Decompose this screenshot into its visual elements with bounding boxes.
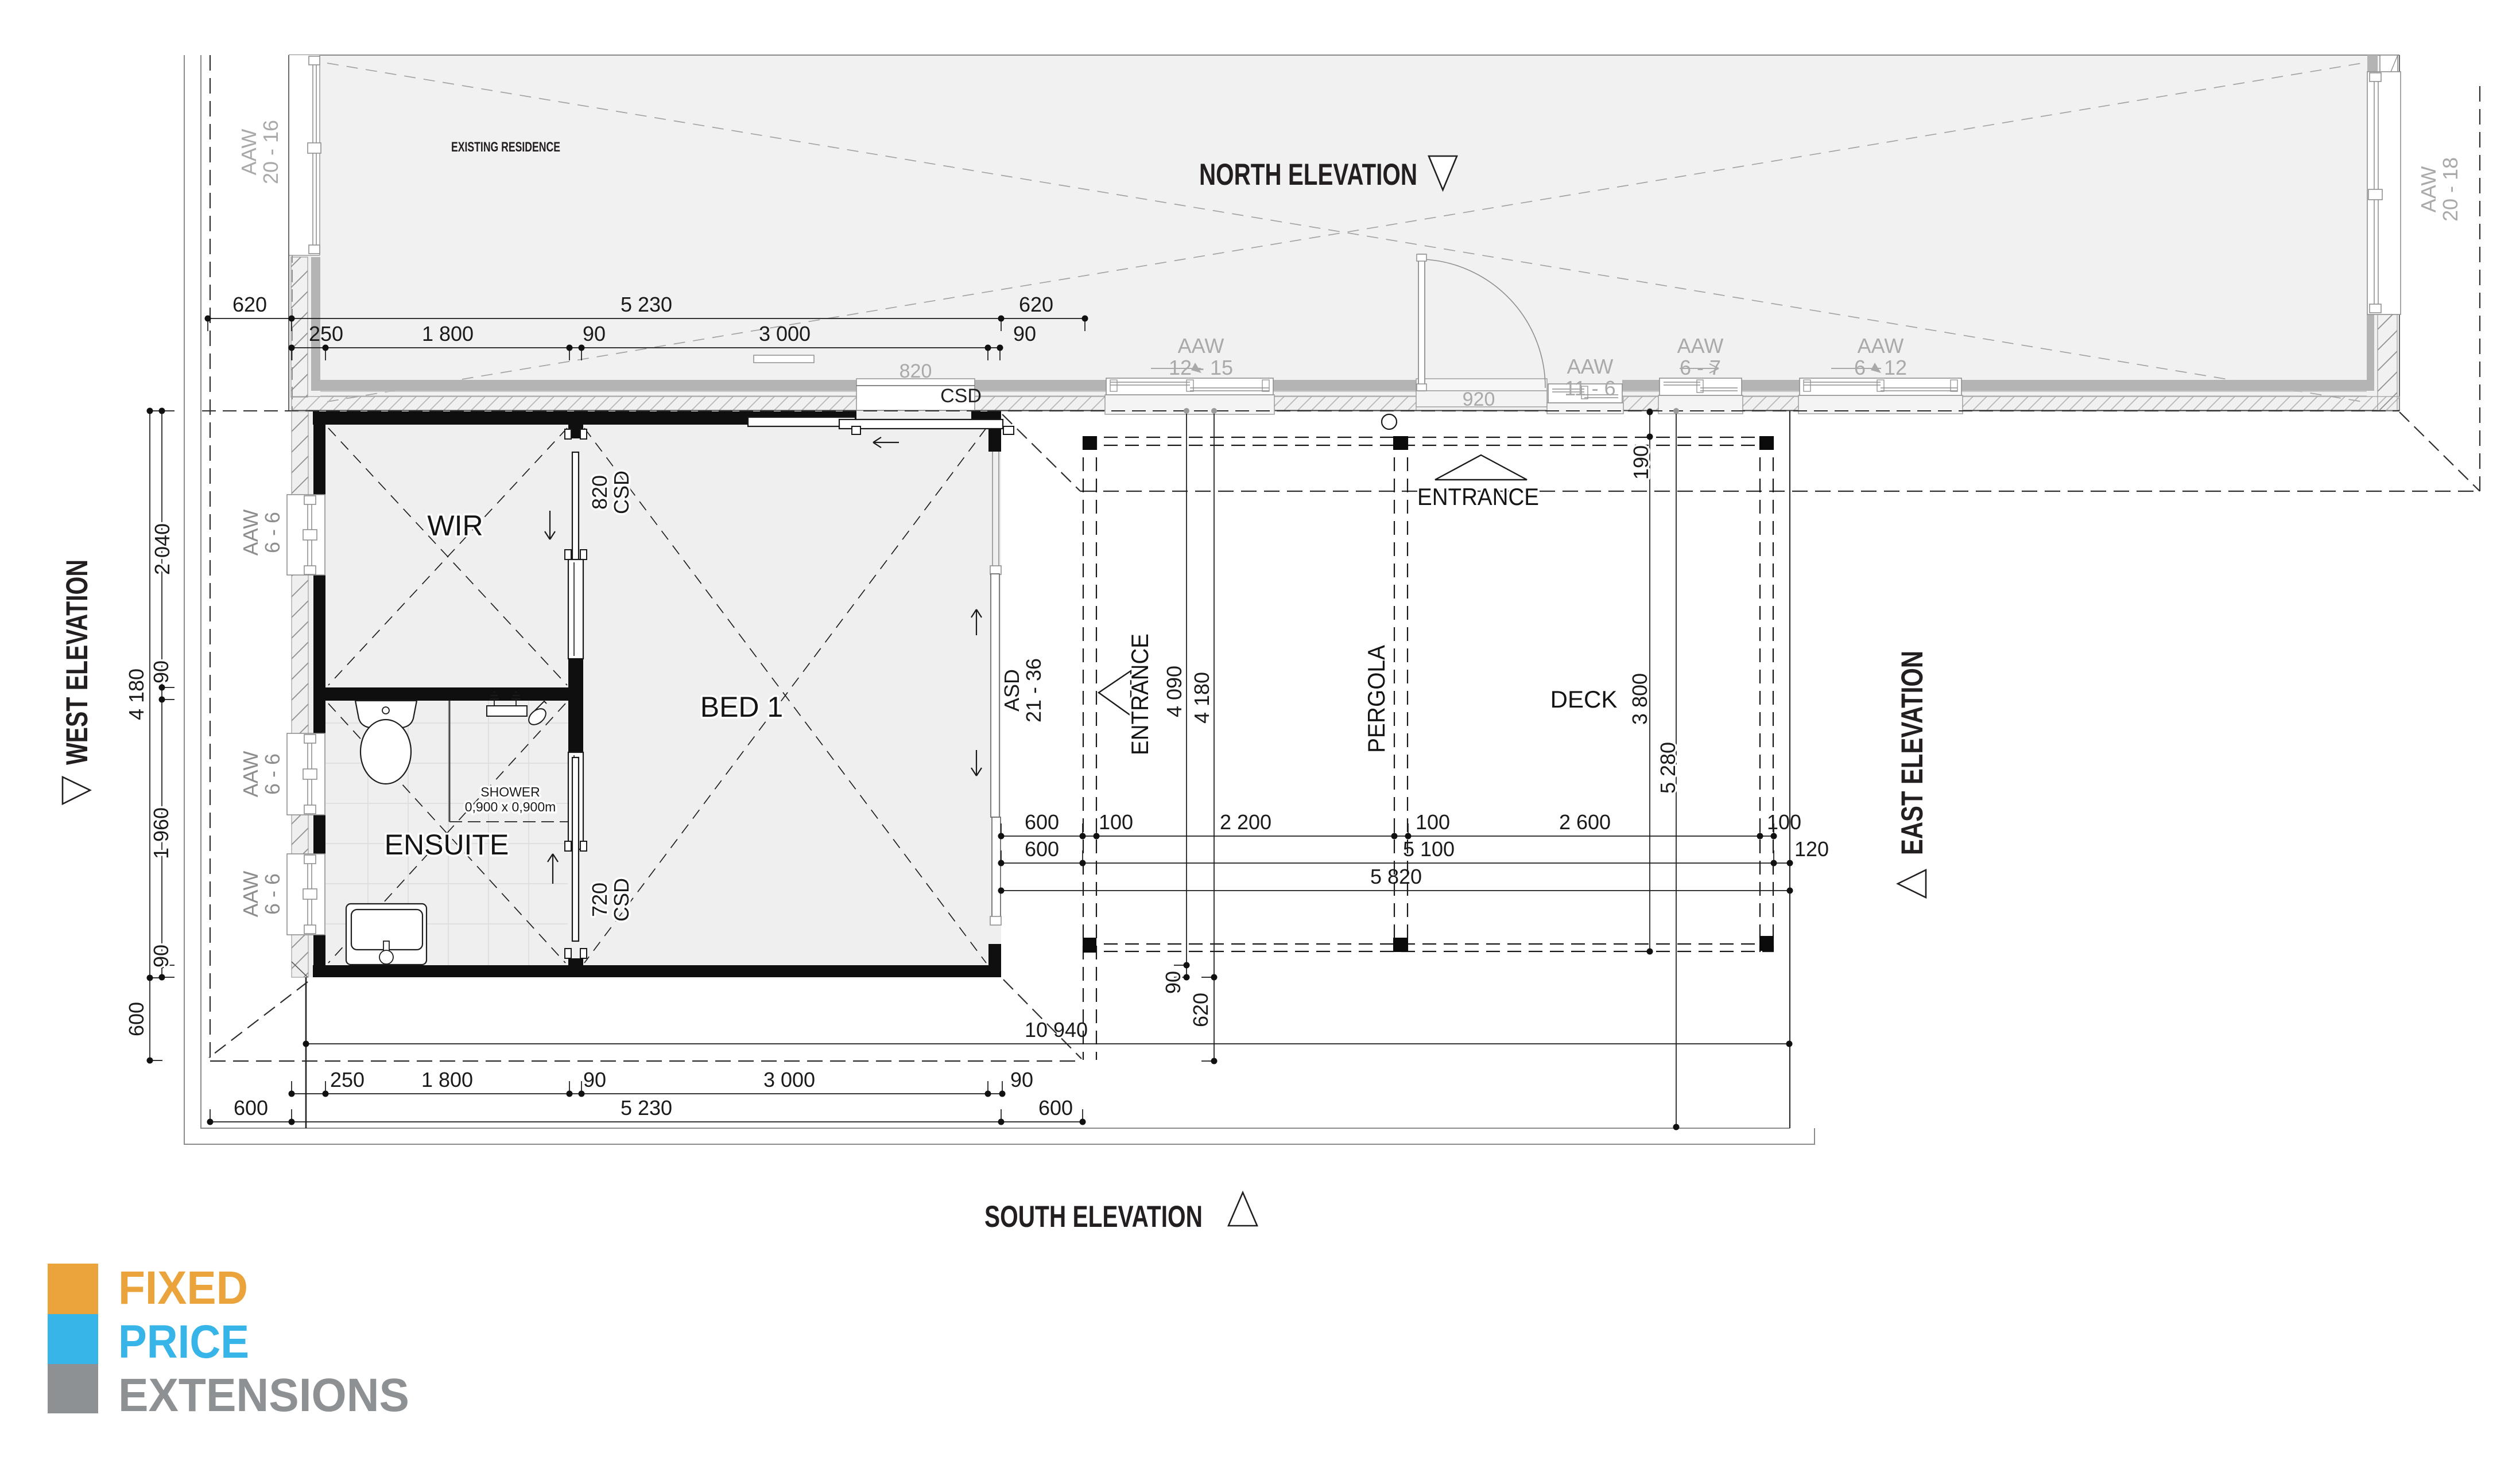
svg-text:600: 600 <box>1025 810 1059 834</box>
svg-text:620: 620 <box>232 293 267 316</box>
svg-text:4 180: 4 180 <box>125 669 148 720</box>
svg-text:190: 190 <box>1629 445 1653 480</box>
svg-text:2 600: 2 600 <box>1559 810 1611 834</box>
svg-text:WIR: WIR <box>427 510 483 542</box>
svg-text:AAW: AAW <box>1858 334 1904 358</box>
svg-text:620: 620 <box>1019 293 1053 316</box>
svg-text:PRICE: PRICE <box>118 1316 249 1368</box>
svg-text:600: 600 <box>1038 1096 1073 1120</box>
svg-text:820: 820 <box>588 475 611 510</box>
svg-text:EXISTING RESIDENCE: EXISTING RESIDENCE <box>451 139 560 155</box>
svg-text:90: 90 <box>583 1068 606 1091</box>
svg-text:ENTRANCE: ENTRANCE <box>1126 634 1153 755</box>
svg-text:4 180: 4 180 <box>1190 672 1214 724</box>
svg-text:1 800: 1 800 <box>421 1068 473 1091</box>
svg-text:FIXED: FIXED <box>118 1262 248 1314</box>
svg-text:6 - 12: 6 - 12 <box>1854 356 1907 379</box>
svg-text:WEST ELEVATION: WEST ELEVATION <box>60 559 94 765</box>
svg-text:5 820: 5 820 <box>1370 865 1422 888</box>
svg-text:820: 820 <box>900 360 932 382</box>
svg-text:600: 600 <box>234 1096 268 1120</box>
svg-text:SOUTH ELEVATION: SOUTH ELEVATION <box>984 1200 1203 1234</box>
svg-text:ASD: ASD <box>1000 669 1023 712</box>
svg-text:920: 920 <box>1463 388 1495 410</box>
svg-text:1 800: 1 800 <box>422 322 474 345</box>
svg-text:DECK: DECK <box>1550 686 1618 713</box>
svg-text:90: 90 <box>1010 1068 1033 1091</box>
svg-text:600: 600 <box>125 1002 148 1036</box>
svg-text:ENSUITE: ENSUITE <box>385 829 509 861</box>
svg-text:250: 250 <box>330 1068 365 1091</box>
svg-text:SHOWER: SHOWER <box>480 784 540 799</box>
svg-text:6 - 6: 6 - 6 <box>261 873 284 915</box>
svg-text:NORTH ELEVATION: NORTH ELEVATION <box>1199 158 1417 192</box>
svg-text:EXTENSIONS: EXTENSIONS <box>118 1369 409 1421</box>
svg-text:3 000: 3 000 <box>763 1068 815 1091</box>
svg-text:21 - 36: 21 - 36 <box>1022 658 1045 722</box>
svg-text:AAW: AAW <box>239 871 262 918</box>
svg-text:90: 90 <box>1161 971 1185 994</box>
svg-text:90: 90 <box>583 322 606 345</box>
svg-text:4 090: 4 090 <box>1162 666 1186 717</box>
svg-text:100: 100 <box>1099 810 1133 834</box>
svg-text:120: 120 <box>1794 837 1829 861</box>
svg-text:AAW: AAW <box>1677 334 1724 358</box>
svg-text:CSD: CSD <box>610 471 633 514</box>
svg-text:ENTRANCE: ENTRANCE <box>1417 483 1539 510</box>
svg-text:1 960: 1 960 <box>149 807 173 859</box>
svg-text:90: 90 <box>1013 322 1036 345</box>
svg-text:AAW: AAW <box>237 129 261 176</box>
svg-text:0,900 x 0,900m: 0,900 x 0,900m <box>465 799 556 814</box>
svg-text:AAW: AAW <box>239 751 262 798</box>
svg-text:11 - 6: 11 - 6 <box>1564 376 1615 400</box>
svg-text:720: 720 <box>588 883 611 917</box>
svg-text:100: 100 <box>1767 810 1801 834</box>
svg-text:CSD: CSD <box>610 878 633 922</box>
svg-text:AAW: AAW <box>2417 166 2440 213</box>
svg-text:20 - 18: 20 - 18 <box>2438 157 2462 222</box>
svg-text:600: 600 <box>1025 837 1059 861</box>
svg-text:AAW: AAW <box>239 510 262 556</box>
svg-text:5 230: 5 230 <box>621 1096 672 1120</box>
svg-text:100: 100 <box>1416 810 1450 834</box>
svg-text:6 - 6: 6 - 6 <box>261 753 284 795</box>
svg-text:BED 1: BED 1 <box>700 691 784 723</box>
svg-text:90: 90 <box>149 945 173 967</box>
svg-text:AAW: AAW <box>1567 355 1614 378</box>
svg-text:3 000: 3 000 <box>759 322 811 345</box>
svg-text:3 800: 3 800 <box>1628 673 1651 725</box>
svg-text:10 940: 10 940 <box>1025 1018 1088 1042</box>
svg-text:20 - 16: 20 - 16 <box>259 120 282 184</box>
svg-text:90: 90 <box>149 660 173 683</box>
svg-text:6 - 7: 6 - 7 <box>1680 356 1721 379</box>
svg-text:250: 250 <box>309 322 343 345</box>
svg-text:12 - 15: 12 - 15 <box>1169 356 1233 379</box>
svg-text:CSD: CSD <box>940 385 982 407</box>
svg-text:PERGOLA: PERGOLA <box>1363 645 1390 753</box>
svg-text:5 100: 5 100 <box>1403 837 1455 861</box>
svg-text:620: 620 <box>1189 993 1212 1027</box>
svg-text:2 040: 2 040 <box>150 523 174 575</box>
svg-text:6 - 6: 6 - 6 <box>261 512 284 553</box>
svg-text:5 230: 5 230 <box>621 293 672 316</box>
svg-text:EAST ELEVATION: EAST ELEVATION <box>1895 651 1929 855</box>
svg-text:5 280: 5 280 <box>1656 742 1680 794</box>
svg-text:2 200: 2 200 <box>1220 810 1271 834</box>
svg-text:AAW: AAW <box>1178 334 1224 358</box>
